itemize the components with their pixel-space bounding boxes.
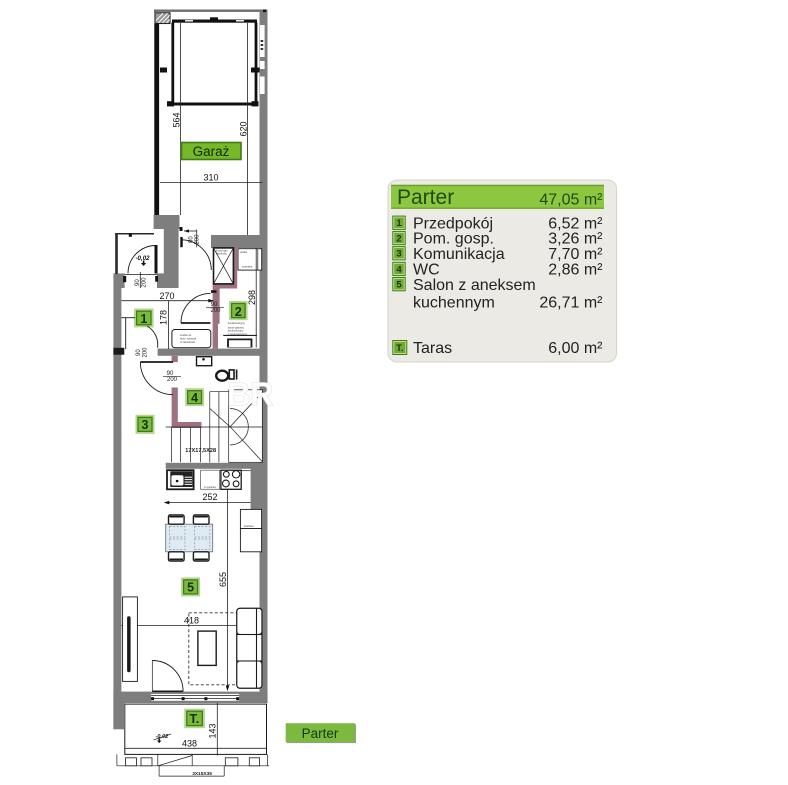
svg-text:47,05 m²: 47,05 m² — [539, 192, 603, 209]
svg-text:4: 4 — [396, 264, 402, 275]
svg-text:T.: T. — [190, 712, 200, 726]
svg-text:418: 418 — [184, 616, 199, 626]
svg-text:kondensacyjny: kondensacyjny — [228, 321, 246, 325]
svg-text:Parter: Parter — [302, 726, 339, 741]
svg-text:270: 270 — [160, 291, 175, 301]
svg-text:200: 200 — [143, 347, 149, 358]
svg-text:200: 200 — [141, 277, 147, 288]
svg-text:143: 143 — [208, 723, 218, 738]
svg-text:T.: T. — [396, 343, 403, 354]
svg-text:BR: BR — [227, 376, 274, 413]
svg-text:kuchennym: kuchennym — [413, 294, 495, 311]
svg-text:298: 298 — [247, 290, 257, 305]
svg-text:Komunikacja: Komunikacja — [413, 246, 505, 263]
svg-text:200: 200 — [210, 308, 221, 314]
svg-text:4: 4 — [191, 391, 198, 405]
svg-text:655: 655 — [218, 572, 228, 587]
svg-text:Taras: Taras — [413, 340, 452, 357]
svg-text:1: 1 — [396, 218, 402, 229]
svg-text:200: 200 — [167, 377, 178, 383]
svg-text:Salon z aneksem: Salon z aneksem — [413, 277, 536, 294]
svg-text:17X17,5X28: 17X17,5X28 — [185, 448, 216, 454]
svg-text:5: 5 — [187, 581, 194, 595]
svg-text:3X15X35: 3X15X35 — [192, 771, 212, 777]
svg-text:3: 3 — [396, 249, 401, 260]
svg-text:438: 438 — [182, 739, 197, 749]
svg-text:178: 178 — [159, 310, 169, 325]
svg-text:buty i wieszak: buty i wieszak — [180, 336, 197, 340]
svg-text:1: 1 — [140, 312, 147, 326]
svg-text:dwufunkc.: dwufunkc. — [216, 252, 228, 256]
svg-text:3: 3 — [142, 418, 149, 432]
svg-text:zmywarka: zmywarka — [204, 485, 216, 489]
svg-text:szafka na: szafka na — [180, 333, 192, 337]
svg-text:7,70 m²: 7,70 m² — [548, 246, 603, 263]
svg-text:2: 2 — [396, 233, 401, 244]
svg-text:dwufunkcyjny: dwufunkcyjny — [228, 328, 244, 332]
svg-text:26,71 m²: 26,71 m² — [539, 294, 603, 311]
svg-text:5: 5 — [396, 280, 402, 291]
svg-text:Parter: Parter — [397, 186, 454, 209]
svg-text:252: 252 — [203, 492, 218, 502]
svg-text:6,00 m²: 6,00 m² — [548, 340, 603, 357]
svg-text:90: 90 — [136, 349, 142, 356]
svg-text:620: 620 — [239, 121, 249, 136]
svg-text:2: 2 — [235, 305, 242, 319]
svg-text:310: 310 — [204, 173, 219, 183]
svg-text:lodówka: lodówka — [244, 524, 254, 528]
svg-text:pralka: pralka — [240, 250, 248, 254]
svg-text:2,86 m²: 2,86 m² — [548, 262, 603, 279]
svg-text:564: 564 — [172, 112, 182, 127]
svg-text:suszarka: suszarka — [242, 265, 253, 269]
svg-text:Garaż: Garaż — [193, 144, 230, 159]
svg-text:w zabudowie: w zabudowie — [180, 340, 196, 344]
svg-text:90: 90 — [135, 279, 141, 286]
